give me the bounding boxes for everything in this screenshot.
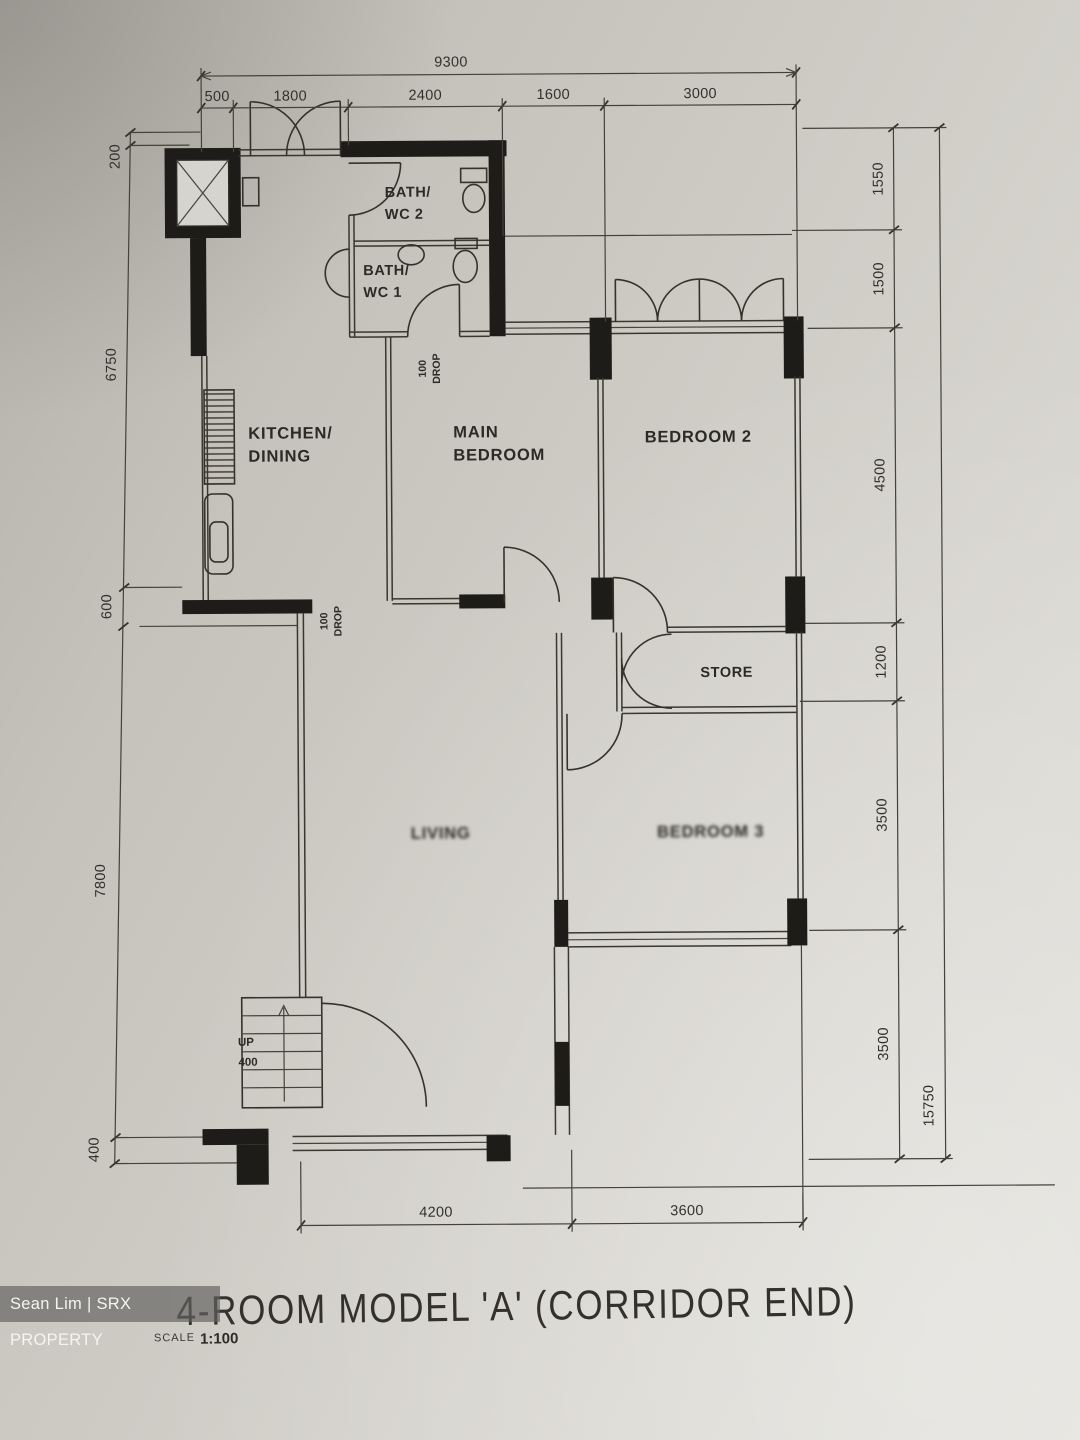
dim-left-400: 400 (87, 1137, 103, 1162)
lift-shaft (165, 148, 260, 239)
staircase (242, 997, 323, 1107)
room-label-kitchen-line1: KITCHEN/ (248, 424, 332, 443)
room-label-bedroom3: BEDROOM 3 (657, 823, 764, 842)
dim-right-3500b: 3500 (876, 1027, 892, 1061)
dim-top-2400: 2400 (408, 88, 442, 104)
drop-note-2-line1: 100 (318, 612, 330, 630)
dim-right-1200: 1200 (874, 645, 890, 679)
dimension-lines (103, 64, 953, 1235)
room-label-bath-wc1-line1: BATH/ (363, 263, 409, 279)
dim-left-200: 200 (107, 144, 123, 169)
fixtures (203, 168, 493, 1108)
title-block: 4-ROOM MODEL 'A' (CORRIDOR END) SCALE 1:… (153, 1278, 857, 1348)
stair-up-label: UP (238, 1037, 254, 1049)
dim-top-overall: 9300 (434, 54, 468, 70)
scale-value: 1:100 (200, 1330, 239, 1348)
watermark: Sean Lim | SRX PROPERTY (0, 1286, 220, 1322)
wc2-toilet (461, 168, 487, 212)
drop-note-1-line2: DROP (431, 353, 443, 383)
dim-top-500: 500 (205, 89, 230, 105)
room-label-bath-wc1-line2: WC 1 (363, 285, 402, 301)
room-label-bedroom2: BEDROOM 2 (645, 428, 752, 447)
room-label-main-bedroom-line1: MAIN (453, 423, 498, 441)
scale-label: SCALE (154, 1332, 195, 1345)
doors-windows (250, 99, 788, 1108)
room-label-kitchen-line2: DINING (248, 447, 311, 465)
dim-left-600: 600 (99, 594, 115, 619)
dim-top-1600: 1600 (536, 87, 570, 103)
dim-right-overall: 15750 (921, 1085, 937, 1127)
room-labels: BATH/ WC 2 BATH/ WC 1 KITCHEN/ DINING MA… (247, 183, 765, 844)
walls (136, 137, 1055, 1231)
dim-left-7800: 7800 (93, 864, 109, 898)
room-label-bath-wc2-line1: BATH/ (385, 185, 431, 201)
dim-top-1800: 1800 (273, 88, 307, 104)
room-label-main-bedroom-line2: BEDROOM (453, 446, 545, 465)
stair-rise-label: 400 (238, 1057, 257, 1069)
dim-bottom-3600: 3600 (670, 1203, 704, 1219)
dim-right-4500: 4500 (872, 458, 888, 492)
plan-title: 4-ROOM MODEL 'A' (CORRIDOR END) (176, 1278, 857, 1334)
dim-right-1550: 1550 (871, 162, 887, 196)
dim-right-1500: 1500 (871, 262, 887, 296)
dim-right-3500a: 3500 (874, 798, 890, 832)
room-label-bath-wc2-line2: WC 2 (385, 207, 424, 223)
floor-plan-photo: 9300 500 1800 2400 1600 3000 200 6750 60… (0, 0, 1080, 1440)
room-label-living: LIVING (411, 824, 471, 842)
room-label-store: STORE (700, 665, 753, 681)
dim-bottom-4200: 4200 (419, 1205, 453, 1221)
dim-left-6750: 6750 (104, 348, 120, 382)
floor-plan-drawing: 9300 500 1800 2400 1600 3000 200 6750 60… (0, 0, 1080, 1440)
dim-top-3000: 3000 (683, 86, 717, 102)
drop-note-2-line2: DROP (332, 606, 344, 636)
drop-note-1-line1: 100 (417, 360, 429, 378)
